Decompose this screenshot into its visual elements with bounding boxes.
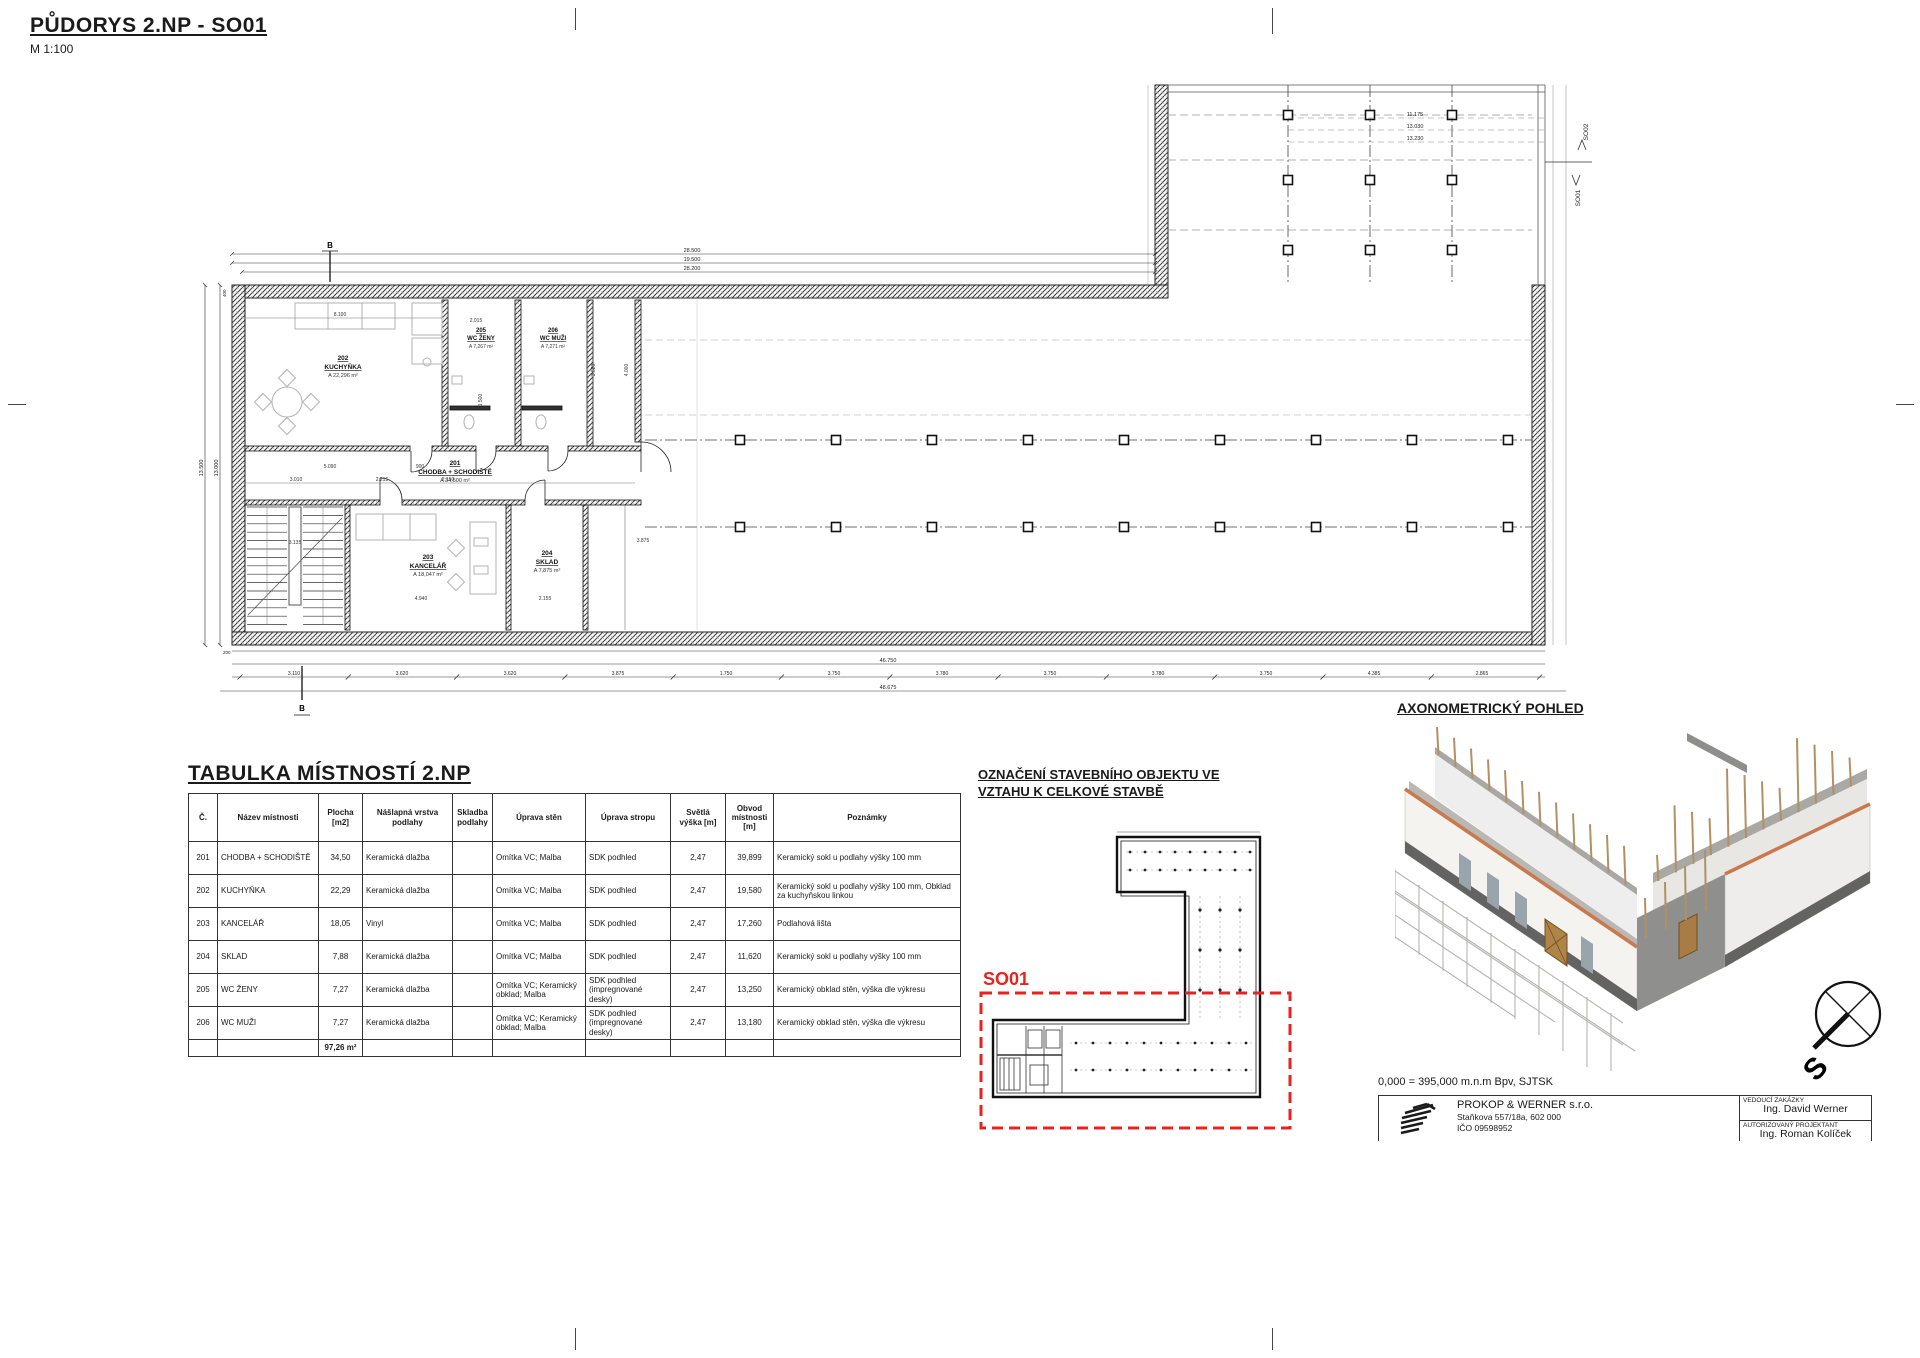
- room-label-202: 202 KUCHYŇKA A 22,296 m²: [324, 355, 362, 379]
- svg-text:206: 206: [548, 328, 559, 334]
- upper-wing: [1148, 85, 1545, 285]
- svg-text:46.750: 46.750: [880, 658, 897, 664]
- level-note: 0,000 = 395,000 m.n.m Bpv, SJTSK: [1378, 1076, 1553, 1088]
- svg-text:400: 400: [222, 289, 227, 297]
- hall-grid: [645, 300, 1532, 630]
- svg-text:200: 200: [223, 650, 231, 655]
- dim-upper-right: 11.175 13.030 13.230: [1288, 85, 1566, 645]
- table-row: 203KANCELÁŘ18,05 VinylOmítka VC; Malba S…: [189, 908, 961, 941]
- table-row: 206WC MUŽI7,27 Keramická dlažbaOmítka VC…: [189, 1007, 961, 1040]
- location-diagram: SO01: [978, 830, 1298, 1135]
- room-table: Č.Název místnostiPlocha [m2] Nášlapná vr…: [188, 793, 961, 1057]
- interior-walls: [245, 300, 641, 630]
- company-ico: IČO 09598952: [1457, 1123, 1739, 1133]
- svg-text:2.155: 2.155: [539, 596, 552, 602]
- lead-value: Ing. David Werner: [1740, 1103, 1871, 1115]
- svg-text:13.230: 13.230: [1407, 136, 1424, 142]
- table-row: 204SKLAD7,88 Keramická dlažbaOmítka VC; …: [189, 941, 961, 974]
- svg-text:5.090: 5.090: [324, 464, 337, 470]
- svg-text:13.030: 13.030: [1407, 124, 1424, 130]
- company-name: PROKOP & WERNER s.r.o.: [1457, 1099, 1739, 1111]
- table-row: 202KUCHYŇKA22,29 Keramická dlažbaOmítka …: [189, 875, 961, 908]
- table-row: 205WC ŽENY7,27 Keramická dlažbaOmítka VC…: [189, 974, 961, 1007]
- svg-text:A 22,296 m²: A 22,296 m²: [328, 373, 358, 379]
- svg-text:203: 203: [423, 554, 434, 561]
- svg-text:B: B: [327, 241, 333, 250]
- dim-bottom: 200 46.750 48.675 3.110 3.620 3.620 3.87…: [220, 650, 1566, 691]
- svg-text:A 7,875 m²: A 7,875 m²: [534, 568, 561, 574]
- so-boundary: SO02 SO01: [1545, 123, 1592, 206]
- dim-left: 13.500 13.000 400: [199, 283, 227, 647]
- total-area: 97,26 m²: [319, 1040, 363, 1057]
- svg-text:48.675: 48.675: [880, 685, 897, 691]
- authorized-value: Ing. Roman Kolíček: [1740, 1128, 1871, 1140]
- north-compass: S: [1800, 968, 1910, 1093]
- svg-text:4.940: 4.940: [415, 596, 428, 602]
- drawing-sheet: { "page": { "title": "PŮDORYS 2.NP - SO0…: [0, 0, 1920, 1358]
- svg-text:28.500: 28.500: [684, 248, 701, 254]
- svg-text:3.010: 3.010: [290, 477, 303, 483]
- svg-text:8.100: 8.100: [334, 312, 347, 318]
- svg-text:2.150: 2.150: [442, 477, 455, 483]
- company-info: PROKOP & WERNER s.r.o. Staňkova 557/18a,…: [1457, 1096, 1739, 1141]
- svg-text:3.780: 3.780: [936, 671, 949, 677]
- svg-text:A 18,047 m²: A 18,047 m²: [413, 572, 443, 578]
- room-table-section: TABULKA MÍSTNOSTÍ 2.NP Č.Název místnosti…: [188, 762, 968, 1057]
- title-block: PROKOP & WERNER s.r.o. Staňkova 557/18a,…: [1378, 1095, 1872, 1141]
- svg-text:3.875: 3.875: [637, 538, 650, 544]
- crop-mark: [1272, 8, 1273, 34]
- page-title: PŮDORYS 2.NP - SO01: [30, 14, 267, 38]
- svg-text:3.620: 3.620: [591, 364, 597, 377]
- svg-text:A 7,271 m²: A 7,271 m²: [541, 344, 566, 350]
- svg-text:1.500: 1.500: [478, 394, 484, 407]
- svg-text:3.750: 3.750: [1044, 671, 1057, 677]
- svg-text:3.875: 3.875: [612, 671, 625, 677]
- room-label-203: 203 KANCELÁŘ A 18,047 m²: [410, 554, 447, 578]
- table-row: 201CHODBA + SCHODIŠTĚ34,50 Keramická dla…: [189, 842, 961, 875]
- axon-back-gable: [1687, 733, 1747, 773]
- axon-heading: AXONOMETRICKÝ POHLED: [1397, 700, 1584, 716]
- section-mark-top: B: [322, 241, 338, 282]
- svg-text:KANCELÁŘ: KANCELÁŘ: [410, 561, 447, 570]
- table-total-row: 97,26 m²: [189, 1040, 961, 1057]
- location-heading-line2: VZTAHU K CELKOVÉ STAVBĚ: [978, 784, 1164, 799]
- svg-text:1.750: 1.750: [720, 671, 733, 677]
- room-label-206: 206 WC MUŽI A 7,271 m²: [540, 328, 567, 350]
- svg-text:3.620: 3.620: [396, 671, 409, 677]
- location-heading: OZNAČENÍ STAVEBNÍHO OBJEKTU VE VZTAHU K …: [978, 766, 1248, 800]
- svg-text:2.215: 2.215: [376, 477, 389, 483]
- dim-top-labels: 28.500 19.500 28.200: [684, 248, 701, 272]
- table-title: TABULKA MÍSTNOSTÍ 2.NP: [188, 762, 968, 786]
- location-heading-line1: OZNAČENÍ STAVEBNÍHO OBJEKTU VE: [978, 767, 1219, 782]
- svg-text:3.110: 3.110: [288, 671, 300, 677]
- compass-south-label: S: [1800, 1050, 1835, 1087]
- svg-text:WC MUŽI: WC MUŽI: [540, 334, 567, 342]
- crop-mark: [1896, 404, 1914, 405]
- svg-text:3.750: 3.750: [1260, 671, 1273, 677]
- so02-label: SO02: [1583, 123, 1590, 140]
- svg-text:2.015: 2.015: [470, 318, 483, 324]
- crop-mark: [8, 404, 26, 405]
- svg-text:4.000: 4.000: [624, 364, 630, 377]
- title-block-people: VEDOUCÍ ZAKÁZKY Ing. David Werner AUTORI…: [1739, 1096, 1871, 1141]
- crop-mark: [1272, 1328, 1273, 1350]
- svg-text:28.200: 28.200: [684, 266, 701, 272]
- svg-text:3.135: 3.135: [289, 540, 302, 546]
- segment-dims: 3.110 3.620 3.620 3.875 1.750 3.750 3.78…: [288, 671, 1489, 677]
- room-label-205: 205 WC ŽENY A 7,267 m²: [467, 328, 495, 350]
- svg-text:WC ŽENY: WC ŽENY: [467, 334, 495, 342]
- svg-text:900: 900: [416, 464, 425, 470]
- svg-text:CHODBA + SCHODIŠTĚ: CHODBA + SCHODIŠTĚ: [418, 467, 492, 476]
- crop-mark: [575, 1328, 576, 1350]
- room-label-201: 201 CHODBA + SCHODIŠTĚ A 34,500 m²: [418, 460, 492, 484]
- svg-text:11.175: 11.175: [1407, 112, 1423, 118]
- svg-text:A 7,267 m²: A 7,267 m²: [469, 344, 494, 350]
- svg-text:202: 202: [338, 355, 349, 362]
- room-label-204: 204 SKLAD A 7,875 m²: [534, 550, 561, 574]
- svg-text:3.750: 3.750: [828, 671, 841, 677]
- svg-text:3.620: 3.620: [504, 671, 517, 677]
- svg-text:4.385: 4.385: [1368, 671, 1381, 677]
- drawing-scale: M 1:100: [30, 42, 73, 56]
- hall-columns: [736, 436, 1513, 532]
- crop-mark: [575, 8, 576, 30]
- svg-text:3.780: 3.780: [1152, 671, 1165, 677]
- svg-text:13.500: 13.500: [199, 460, 205, 477]
- table-header-row: Č.Název místnostiPlocha [m2] Nášlapná vr…: [189, 794, 961, 842]
- svg-text:19.500: 19.500: [684, 257, 701, 263]
- so01-boundary-label: SO01: [1575, 189, 1582, 206]
- svg-text:SKLAD: SKLAD: [536, 559, 559, 566]
- floor-plan: 202 KUCHYŇKA A 22,296 m² 205 WC ŽENY A 7…: [180, 70, 1630, 730]
- svg-text:205: 205: [476, 328, 487, 334]
- svg-text:B: B: [299, 704, 305, 713]
- svg-text:201: 201: [450, 460, 461, 467]
- so01-label: SO01: [983, 969, 1029, 989]
- svg-text:KUCHYŇKA: KUCHYŇKA: [324, 362, 362, 371]
- company-address: Staňkova 557/18a, 602 000: [1457, 1112, 1739, 1122]
- svg-text:2.865: 2.865: [1476, 671, 1489, 677]
- svg-text:13.000: 13.000: [214, 460, 220, 477]
- staircase: [247, 507, 343, 625]
- company-logo: [1379, 1096, 1457, 1141]
- svg-text:204: 204: [542, 550, 553, 557]
